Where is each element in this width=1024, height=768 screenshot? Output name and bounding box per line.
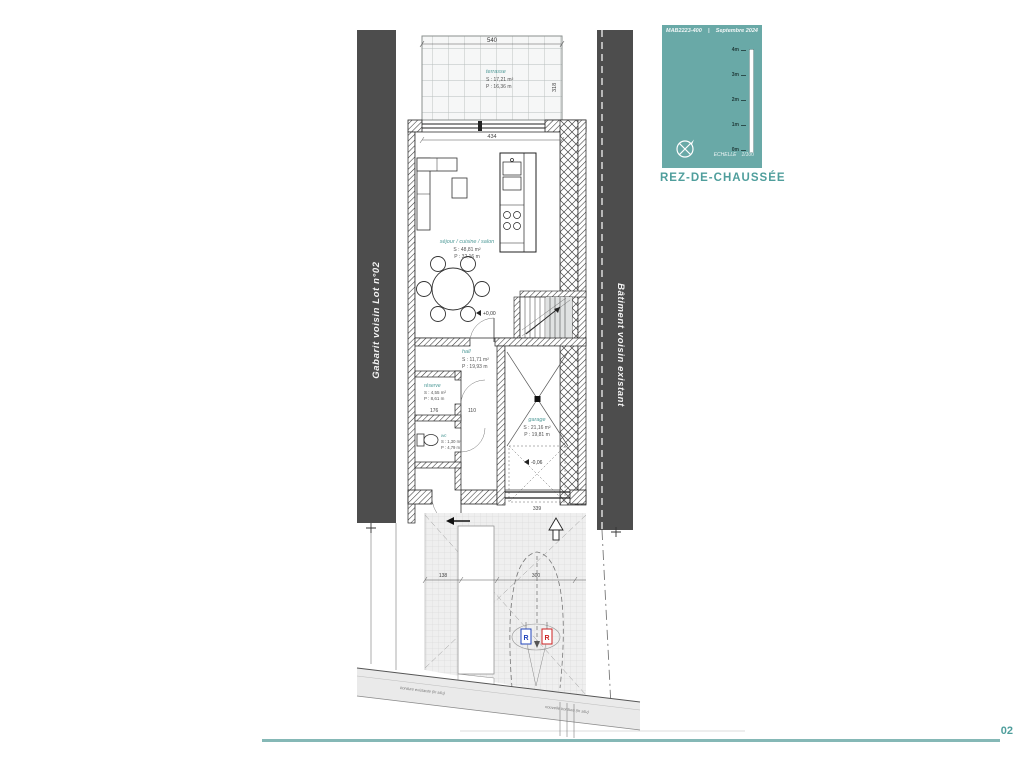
dim-walkway-width: 138	[439, 573, 448, 579]
entrance-walkway	[458, 526, 494, 674]
header-separator: |	[708, 28, 710, 34]
dim-wc-width: 110	[468, 408, 476, 414]
svg-text:+0,00: +0,00	[483, 311, 496, 317]
reserve-room: réserve S : 4,55 m² P : 8,61 m 176 110	[424, 383, 476, 414]
floor-plan-canvas: Gabarit voisin Lot n°02 Bâtiment voisin …	[0, 0, 1024, 768]
svg-text:P : 4,79 m: P : 4,79 m	[441, 445, 461, 450]
issue-date: Septembre 2024	[716, 28, 758, 34]
svg-text:S : 17,21 m²: S : 17,21 m²	[486, 77, 514, 83]
dim-terrace-depth: 318	[552, 83, 558, 92]
svg-text:S : 11,71 m²: S : 11,71 m²	[462, 357, 489, 363]
driveway: 138 300 R R	[423, 513, 586, 704]
north-compass-icon	[674, 136, 698, 160]
title-block-header: MAB2223-400 | Septembre 2024	[666, 28, 758, 34]
svg-text:S : 21,16 m²: S : 21,16 m²	[523, 425, 551, 431]
svg-text:-0,06: -0,06	[531, 460, 543, 466]
plot-edge-lines	[371, 523, 396, 670]
svg-text:wc: wc	[441, 433, 447, 438]
kitchen-counter	[500, 153, 536, 252]
svg-text:séjour / cuisine / salon: séjour / cuisine / salon	[440, 239, 494, 245]
left-band-label: Gabarit voisin Lot n°02	[371, 261, 382, 378]
plan-sheet: Gabarit voisin Lot n°02 Bâtiment voisin …	[0, 0, 1024, 768]
dim-reserve-width: 176	[430, 408, 439, 414]
svg-text:P : 16,36 m: P : 16,36 m	[486, 84, 511, 90]
svg-text:P : 32,16 m: P : 32,16 m	[454, 254, 479, 260]
svg-text:S : 4,55 m²: S : 4,55 m²	[424, 390, 447, 395]
svg-text:S : 48,81 m²: S : 48,81 m²	[453, 247, 481, 253]
coffee-table	[452, 178, 467, 198]
scale-value: 1/100	[741, 152, 754, 158]
scale-annotation: ECHELLE 1/100	[714, 152, 754, 158]
svg-text:garage: garage	[528, 417, 545, 423]
svg-text:P : 19,93 m: P : 19,93 m	[462, 364, 487, 370]
svg-text:R: R	[523, 635, 528, 642]
terrace-area: 540 318 terrasse S : 17,21 m² P : 16,36 …	[420, 36, 564, 120]
svg-text:P : 19,81 m: P : 19,81 m	[524, 432, 549, 438]
toilet-icon	[417, 434, 424, 446]
wc-room: wc S : 1,30 m² P : 4,79 m	[417, 433, 462, 450]
right-neighbour-band: Bâtiment voisin existant	[597, 30, 633, 726]
footer-rule	[262, 739, 1000, 742]
graphic-scale-bar: 4m 3m 2m 1m 0m	[720, 47, 754, 153]
dim-garage-door: 339	[533, 506, 542, 512]
scale-label: ECHELLE	[714, 152, 737, 158]
svg-text:terrasse: terrasse	[486, 69, 506, 75]
dim-living-width: 434	[487, 134, 496, 140]
svg-text:P : 8,61 m: P : 8,61 m	[424, 396, 445, 401]
page-number: 02	[950, 725, 1013, 737]
property-boundary-line	[602, 530, 612, 726]
svg-text:réserve: réserve	[424, 383, 441, 389]
left-neighbour-band: Gabarit voisin Lot n°02	[357, 30, 396, 523]
dim-terrace-width: 540	[487, 38, 498, 44]
project-reference: MAB2223-400	[666, 28, 702, 34]
svg-text:hall: hall	[462, 349, 471, 355]
svg-text:R: R	[544, 635, 549, 642]
title-block: MAB2223-400 | Septembre 2024 4m 3m 2m 1m…	[662, 25, 762, 168]
hall-label: hall S : 11,71 m² P : 19,93 m	[462, 349, 489, 370]
right-band-label: Bâtiment voisin existant	[615, 283, 626, 407]
dim-driveway-width: 300	[532, 573, 541, 579]
drawing-title: REZ-DE-CHAUSSÉE	[660, 172, 764, 184]
garage-room: garage S : 21,16 m² P : 19,81 m -0,06 33…	[505, 346, 570, 512]
svg-text:S : 1,30 m²: S : 1,30 m²	[441, 439, 462, 444]
